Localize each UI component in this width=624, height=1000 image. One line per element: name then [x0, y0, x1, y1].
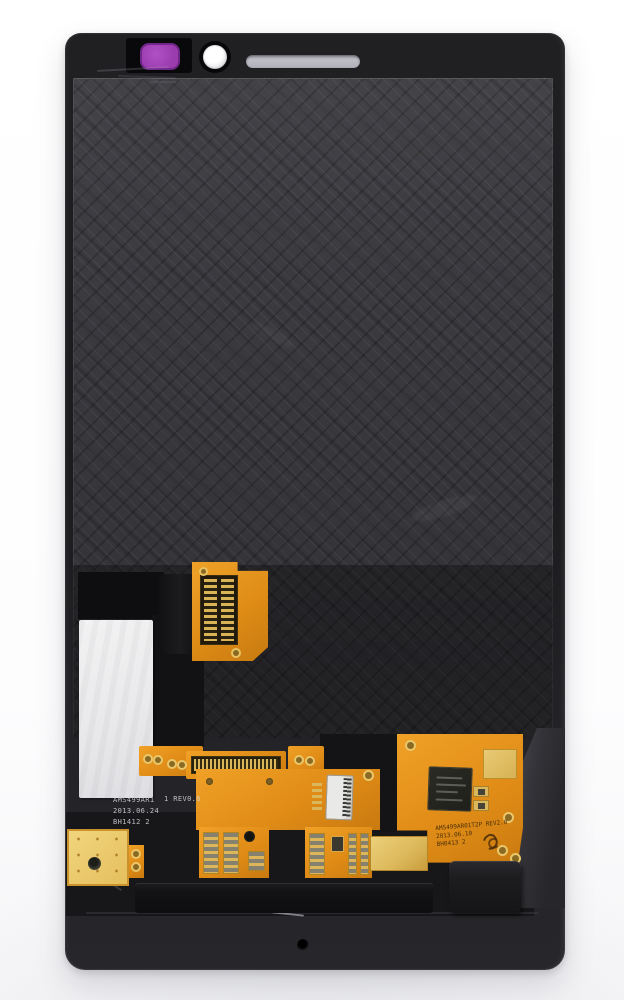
- solder-pad-group-2: [305, 827, 372, 878]
- socket-pins: [342, 778, 351, 817]
- panel-print-line2: 2013.06.24: [113, 806, 159, 817]
- connector-pins: [204, 579, 217, 641]
- flex-fold-bar: [135, 883, 433, 913]
- panel-print-line3: BH1412 2: [113, 817, 159, 828]
- etched-mark: [150, 81, 176, 83]
- component-pad: [473, 786, 489, 797]
- flex-dark-gap: [320, 734, 398, 771]
- gold-test-point: [131, 849, 141, 859]
- ic-etched-text-line: [436, 791, 458, 794]
- solder-pads: [309, 833, 325, 875]
- solder-pads: [223, 832, 239, 874]
- white-btb-socket: [325, 775, 354, 821]
- smd-component: [478, 789, 485, 795]
- gold-test-point: [153, 755, 163, 765]
- rivet-dot: [266, 778, 273, 785]
- smd-component: [331, 836, 344, 852]
- connector-pins: [221, 579, 234, 641]
- rivet-dot: [206, 778, 213, 785]
- gold-shield-pad: [483, 749, 517, 779]
- flex-dark-gap: [378, 768, 400, 832]
- black-board-connector: [449, 861, 521, 913]
- touch-driver-ic: [427, 766, 473, 812]
- flex-hole: [244, 831, 255, 842]
- plate-hole: [88, 857, 101, 870]
- lcd-flex-cable: [158, 574, 195, 654]
- gold-test-point: [167, 759, 177, 769]
- gold-test-point: [231, 648, 241, 658]
- panel-rev-label: 1 REV0.6: [164, 795, 201, 803]
- flex-print-label: AMS499AR01T2P REV2.0 2013.06.10 BH0413 2: [435, 819, 509, 849]
- gold-test-point: [143, 754, 153, 764]
- cable-attach-zone: [78, 572, 164, 619]
- solder-pads: [203, 832, 219, 874]
- gold-test-point: [405, 740, 416, 751]
- product-photo-stage: AMS499AR1 2013.06.24 BH1412 2 1 REV0.6 A…: [0, 0, 624, 1000]
- panel-print-line1: AMS499AR1: [113, 795, 159, 806]
- solder-pads: [360, 833, 369, 875]
- gold-test-point: [305, 756, 315, 766]
- gold-test-point: [199, 567, 208, 576]
- solder-pads: [312, 783, 322, 813]
- gold-test-point: [177, 760, 187, 770]
- microphone-hole: [297, 939, 309, 951]
- ic-etched-text-line: [436, 784, 466, 787]
- solder-pad-group-1: [199, 827, 269, 878]
- component-pad: [473, 800, 489, 811]
- gold-test-point: [363, 770, 374, 781]
- board-to-board-connector: [200, 575, 238, 645]
- panel-print-label: AMS499AR1 2013.06.24 BH1412 2: [113, 795, 159, 828]
- ic-etched-text-line: [436, 777, 462, 780]
- front-camera-hole: [203, 45, 227, 69]
- gold-test-point: [131, 862, 141, 872]
- earpiece-slot: [246, 55, 360, 68]
- solder-pads: [348, 833, 357, 875]
- gold-ground-pad: [370, 836, 428, 871]
- solder-pads: [248, 851, 265, 871]
- gold-test-point: [497, 845, 508, 856]
- gold-test-point: [294, 755, 304, 765]
- smd-component: [478, 803, 485, 809]
- ic-etched-text-line: [436, 799, 463, 802]
